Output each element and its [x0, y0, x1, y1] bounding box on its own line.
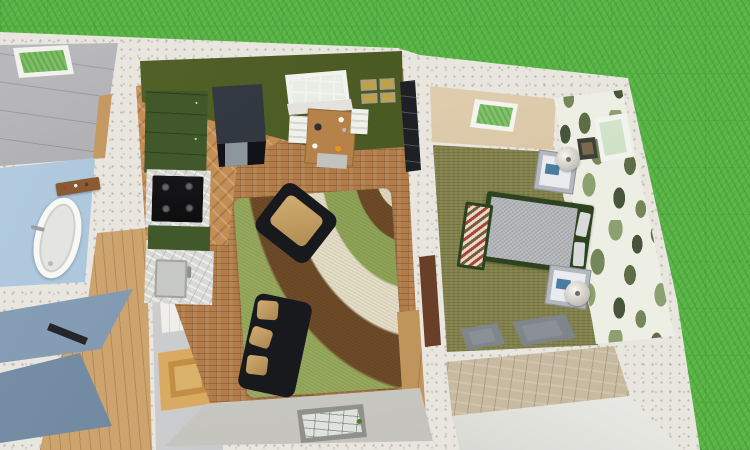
gas-stove[interactable]: [151, 175, 203, 222]
armchair-cushion: [268, 193, 325, 248]
dining-bench[interactable]: [317, 153, 348, 169]
picture-frame: [379, 78, 395, 89]
picture-frames-grid[interactable]: [360, 78, 395, 104]
dining-chair-right[interactable]: [350, 109, 368, 135]
floorplan-3d-view: [0, 0, 750, 450]
sofa-pillow: [257, 300, 279, 320]
dining-chair-left[interactable]: [288, 116, 307, 144]
picture-frame: [380, 92, 396, 103]
picture-frame: [361, 93, 377, 104]
kitchen-sink-counter[interactable]: [144, 249, 214, 305]
bed-pillow: [573, 242, 586, 267]
sink-faucet: [187, 266, 191, 278]
picture-frame: [360, 79, 376, 90]
double-bed[interactable]: [478, 191, 595, 275]
sofa-pillow: [245, 354, 268, 375]
sofa-pillow: [248, 325, 274, 350]
sink-basin: [154, 259, 187, 298]
table-lamp-left[interactable]: [556, 147, 580, 171]
table-lamp-right[interactable]: [565, 281, 590, 306]
kitchen-cabinets-upper-run[interactable]: [144, 90, 207, 173]
bathtub-drain: [48, 261, 54, 267]
bed-duvet: [483, 196, 578, 268]
window-latch: [357, 419, 362, 424]
bed-pillow: [575, 212, 591, 238]
